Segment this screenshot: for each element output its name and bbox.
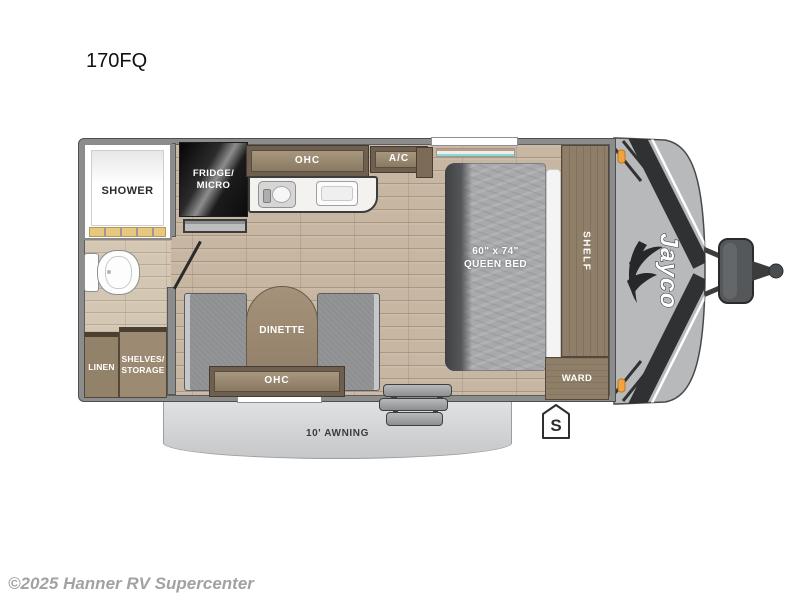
dinette-ohc-label: OHC (210, 367, 344, 396)
copyright-watermark: ©2025 Hanner RV Supercenter (8, 574, 254, 594)
shelves-storage-label: SHELVES/ STORAGE (120, 332, 166, 397)
jayco-logo-text: Jayco (654, 233, 682, 309)
shelf-label: SHELF (562, 146, 608, 356)
front-cap: Jayco (611, 137, 708, 405)
awning-label: 10' AWNING (164, 428, 511, 441)
shelves-storage-cabinet: SHELVES/ STORAGE (119, 327, 167, 398)
linen-label: LINEN (85, 337, 118, 397)
toilet-icon (97, 250, 140, 295)
dinette-label: DINETTE (247, 325, 317, 338)
wardrobe-cabinet: WARD (545, 357, 609, 400)
shower-curtain-track (89, 227, 166, 237)
floorplan-model-title: 170FQ (86, 50, 147, 73)
queen-bed-label: 60" x 74" QUEEN BED (445, 246, 546, 271)
shower-label: SHOWER (85, 145, 170, 238)
fridge-micro-cabinet: FRIDGE/ MICRO (179, 142, 248, 217)
ward-label: WARD (546, 358, 608, 399)
marker-light-bottom (618, 379, 625, 392)
kitchen-overhead-cabinet: OHC (246, 145, 369, 177)
awning-area: 10' AWNING (163, 401, 512, 459)
shelf-cabinet: SHELF (561, 145, 609, 357)
dinette-table: DINETTE (246, 286, 318, 370)
marker-light-top (618, 150, 625, 163)
dinette-overhead-cabinet: OHC (209, 366, 345, 397)
rv-floorplan-page: 170FQ (0, 0, 800, 600)
bathroom-wall-lower (167, 287, 176, 395)
kitchen-sink (258, 181, 296, 208)
window-valance (436, 148, 515, 157)
cooktop (316, 181, 358, 206)
s-marker-letter: S (550, 416, 561, 435)
linen-cabinet: LINEN (84, 332, 119, 398)
hitch-coupler (752, 261, 770, 281)
fridge-lower-shelf (183, 219, 247, 233)
bed-pillows (546, 169, 561, 366)
s-marker-badge: S (541, 403, 571, 440)
kitchen-ohc-label: OHC (247, 146, 368, 176)
bedroom-window (431, 137, 518, 146)
entry-step-3 (386, 412, 443, 426)
shower-stall: SHOWER (83, 143, 172, 240)
end-cabinet (416, 147, 433, 178)
